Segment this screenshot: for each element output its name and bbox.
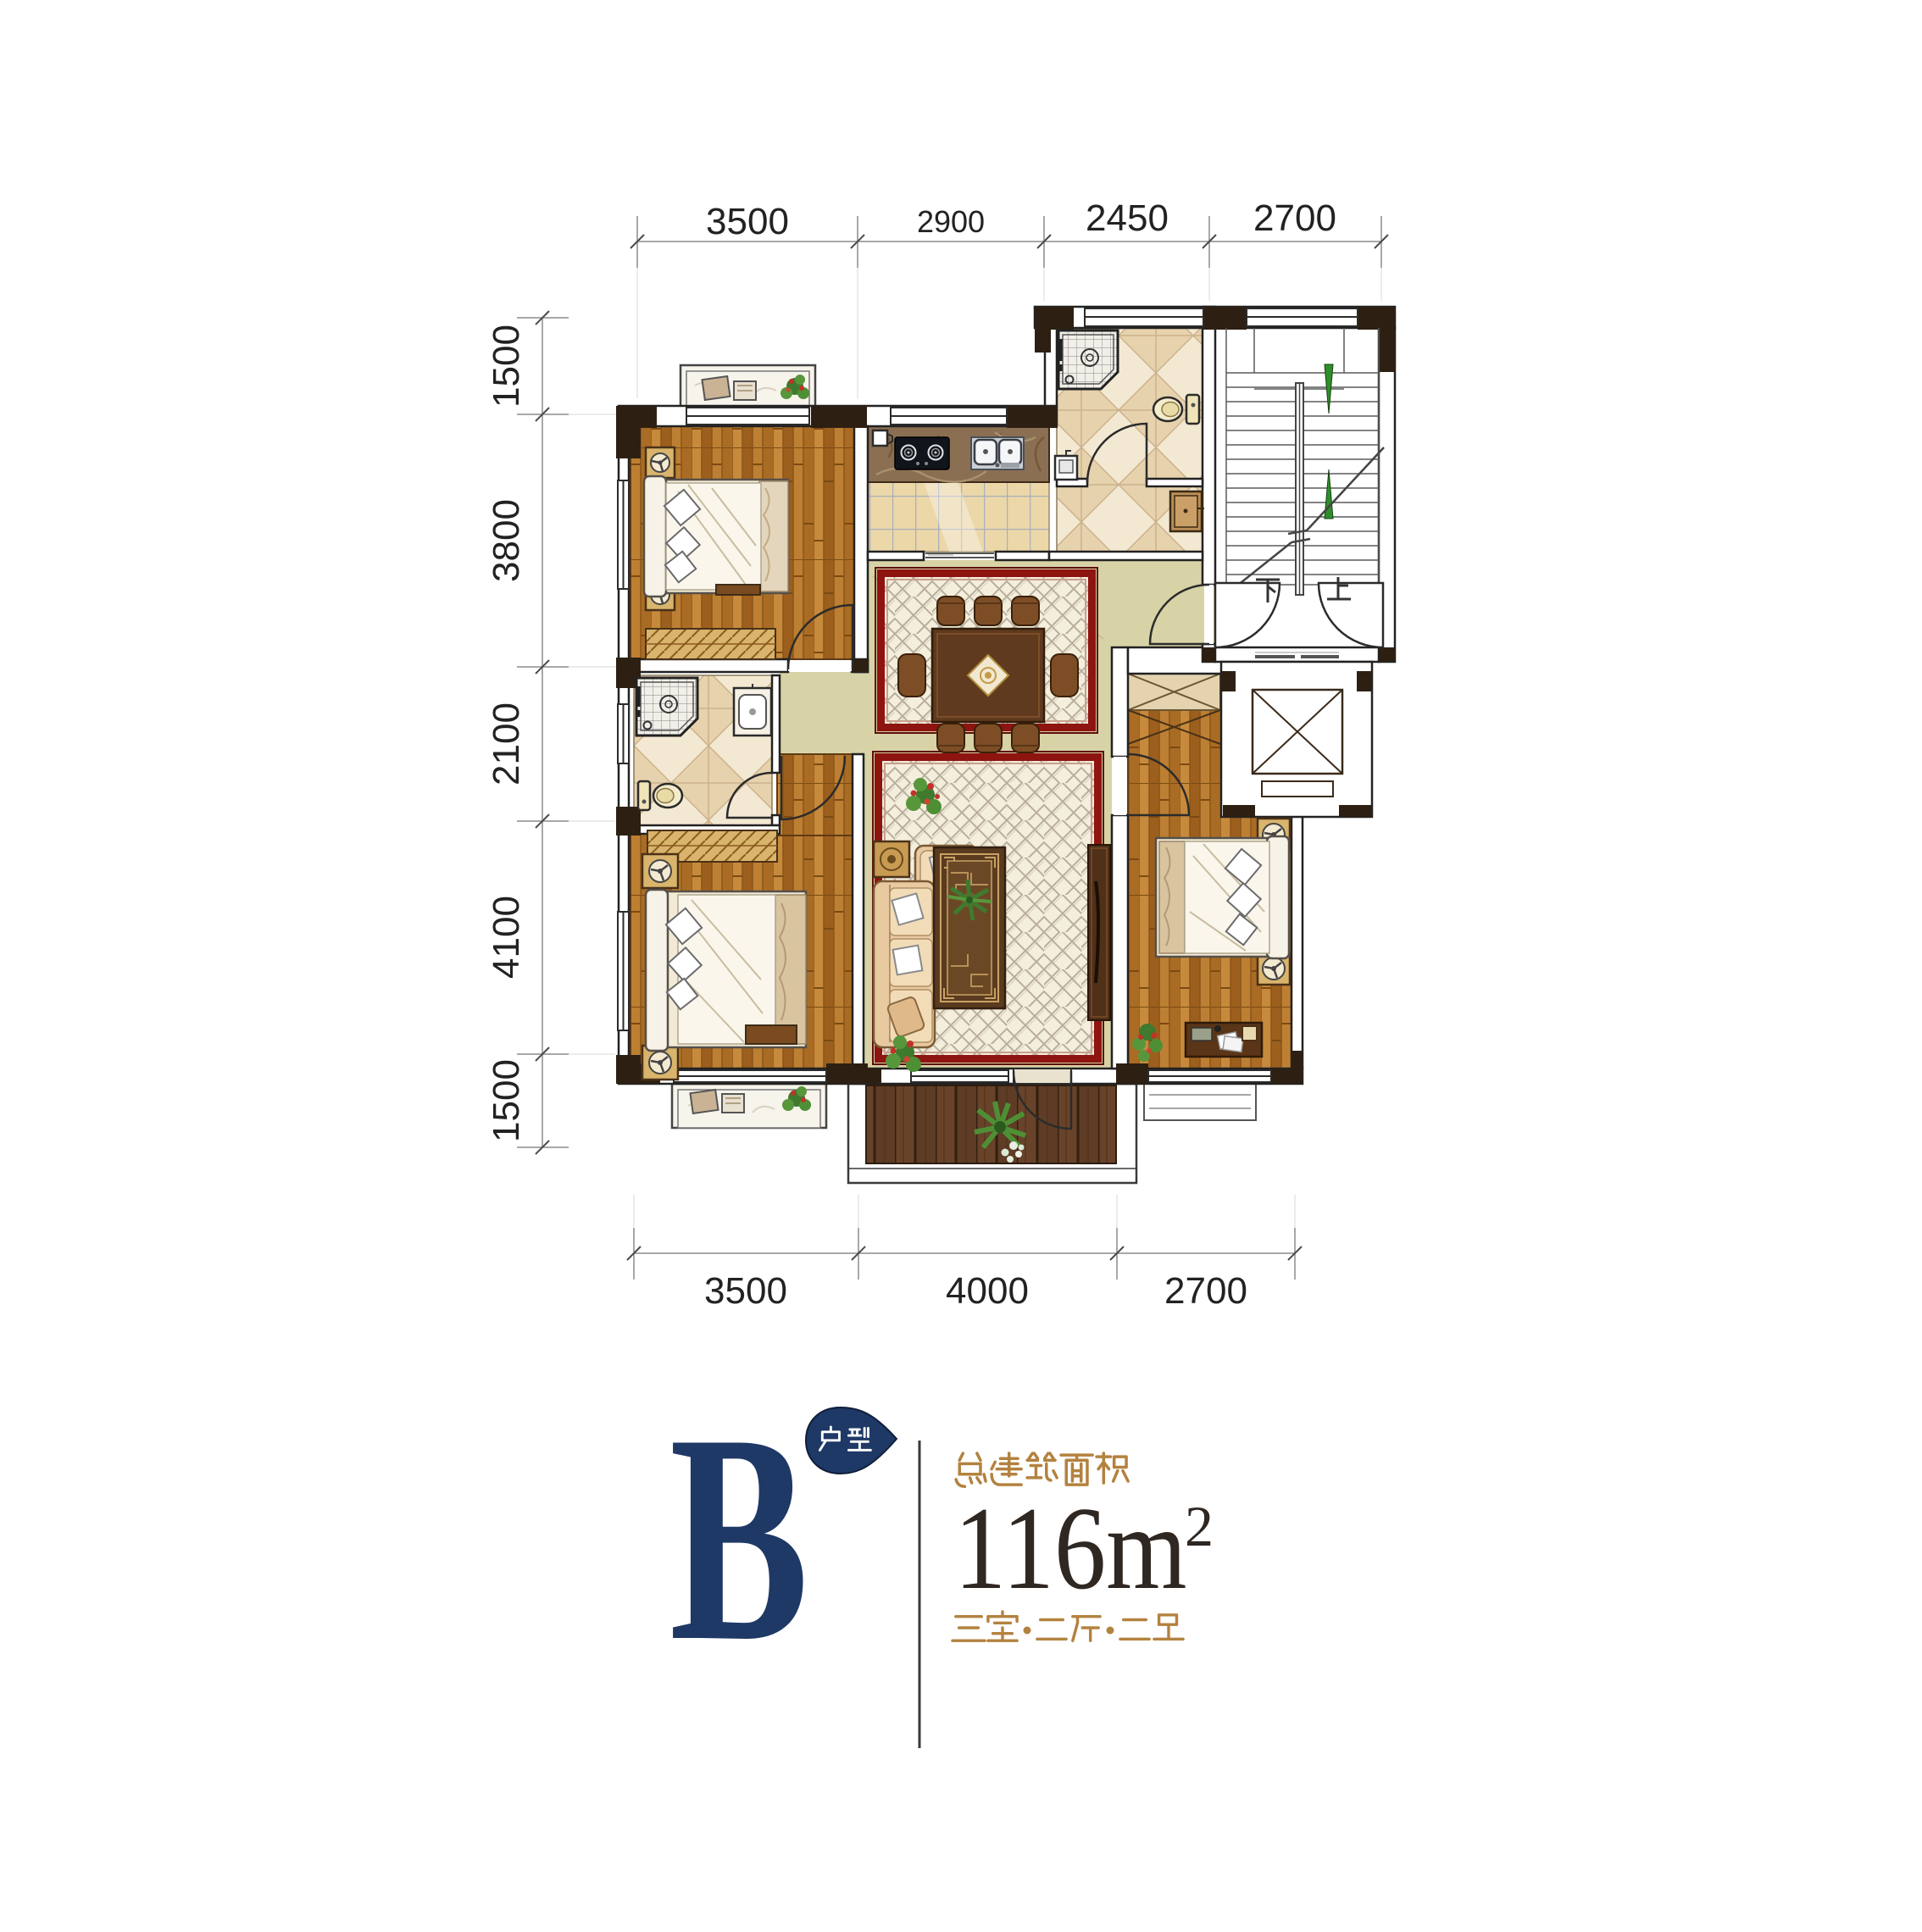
svg-text:3500: 3500 [704, 1270, 787, 1312]
svg-text:3800: 3800 [486, 499, 527, 582]
svg-text:2700: 2700 [1253, 197, 1336, 239]
svg-text:2700: 2700 [1164, 1270, 1247, 1312]
svg-text:2900: 2900 [917, 204, 985, 239]
svg-text:B: B [669, 1372, 808, 1702]
svg-text:1500: 1500 [486, 325, 527, 408]
svg-text:3500: 3500 [706, 201, 789, 242]
svg-text:2100: 2100 [486, 702, 527, 786]
svg-text:116m: 116m [954, 1484, 1186, 1614]
svg-text:4100: 4100 [486, 896, 527, 979]
svg-text:4000: 4000 [946, 1270, 1029, 1312]
svg-text:2450: 2450 [1086, 197, 1169, 239]
svg-text:1500: 1500 [486, 1059, 527, 1142]
svg-text:2: 2 [1185, 1494, 1214, 1558]
